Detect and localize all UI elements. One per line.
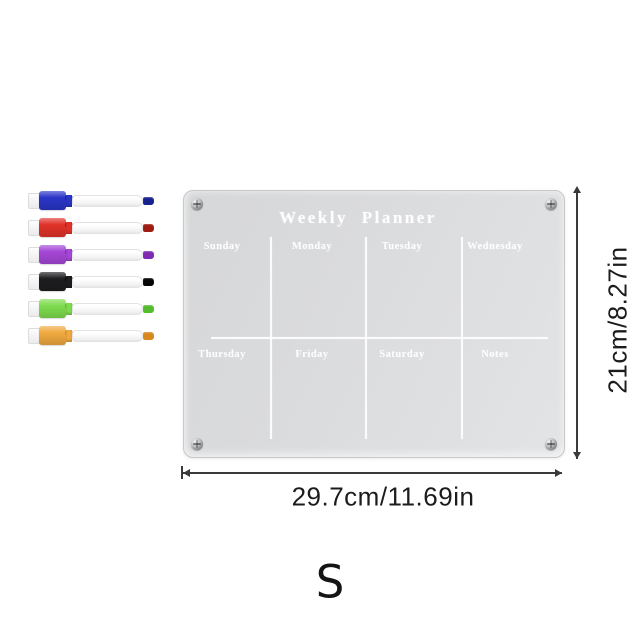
arrow-left-icon bbox=[183, 469, 190, 477]
arrow-down-icon bbox=[573, 452, 581, 459]
day-label-tuesday: Tuesday bbox=[382, 241, 422, 252]
marker-cap bbox=[39, 218, 66, 237]
marker-cap bbox=[39, 191, 66, 210]
marker-orange bbox=[28, 325, 156, 347]
marker-barrel bbox=[72, 276, 143, 288]
marker-barrel bbox=[72, 303, 143, 315]
marker-end-plug bbox=[143, 332, 154, 340]
marker-barrel bbox=[72, 330, 143, 342]
marker-red bbox=[28, 217, 156, 239]
width-dimension-label: 29.7cm/11.69in bbox=[292, 482, 475, 513]
day-label-friday: Friday bbox=[295, 349, 328, 360]
arrow-right-icon bbox=[555, 469, 562, 477]
board-title: Weekly Planner bbox=[279, 208, 437, 228]
day-label-saturday: Saturday bbox=[379, 349, 424, 360]
day-label-wednesday: Wednesday bbox=[467, 241, 523, 252]
marker-end-plug bbox=[143, 278, 154, 286]
marker-end-plug bbox=[143, 305, 154, 313]
corner-screw-icon bbox=[545, 198, 557, 210]
acrylic-planner-board: Weekly Planner Sunday Monday Tuesday Wed… bbox=[183, 190, 565, 458]
marker-black bbox=[28, 271, 156, 293]
corner-screw-icon bbox=[191, 198, 203, 210]
marker-cap bbox=[39, 272, 66, 291]
day-label-monday: Monday bbox=[292, 241, 332, 252]
height-dimension-line bbox=[576, 189, 578, 459]
marker-cap bbox=[39, 245, 66, 264]
day-label-notes: Notes bbox=[481, 349, 509, 360]
marker-end-plug bbox=[143, 197, 154, 205]
product-image: Weekly Planner Sunday Monday Tuesday Wed… bbox=[0, 0, 640, 640]
marker-barrel bbox=[72, 222, 143, 234]
width-dimension-line bbox=[183, 472, 562, 474]
marker-cap bbox=[39, 299, 66, 318]
day-label-thursday: Thursday bbox=[198, 349, 246, 360]
day-label-sunday: Sunday bbox=[204, 241, 241, 252]
marker-end-plug bbox=[143, 224, 154, 232]
corner-screw-icon bbox=[545, 438, 557, 450]
height-dimension-label: 21cm/8.27in bbox=[603, 246, 634, 393]
marker-barrel bbox=[72, 195, 143, 207]
marker-blue bbox=[28, 190, 156, 212]
marker-cap bbox=[39, 326, 66, 345]
marker-barrel bbox=[72, 249, 143, 261]
marker-green bbox=[28, 298, 156, 320]
marker-end-plug bbox=[143, 251, 154, 259]
corner-screw-icon bbox=[191, 438, 203, 450]
grid-horizontal-line bbox=[211, 337, 548, 339]
marker-purple bbox=[28, 244, 156, 266]
size-variant-label: S bbox=[316, 556, 345, 609]
arrow-up-icon bbox=[573, 186, 581, 193]
